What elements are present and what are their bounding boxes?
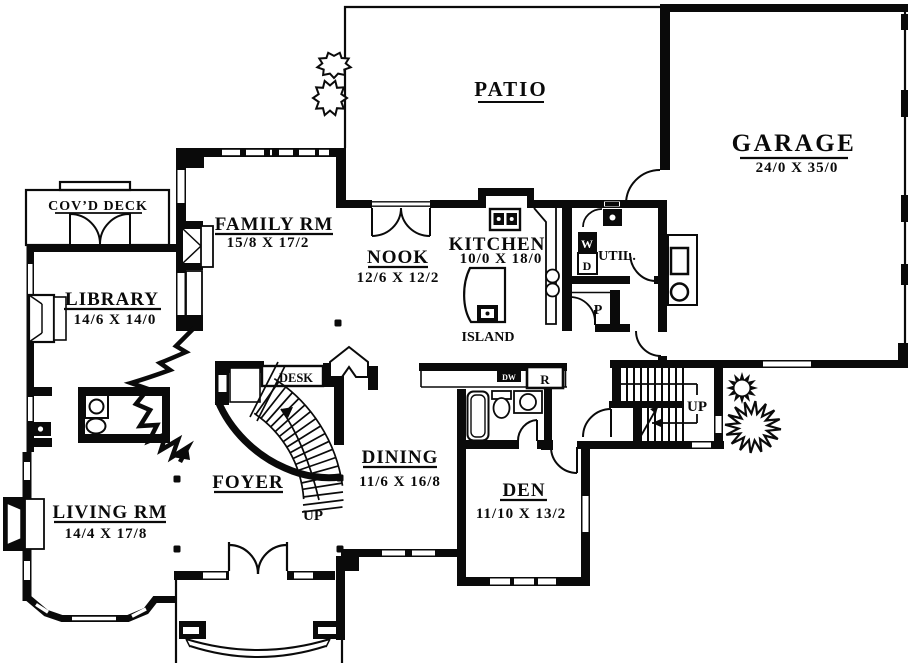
- svg-text:14/6 X 14/0: 14/6 X 14/0: [74, 312, 157, 328]
- svg-text:P: P: [594, 303, 603, 318]
- svg-text:10/0 X 18/0: 10/0 X 18/0: [460, 251, 543, 267]
- svg-text:W: W: [581, 237, 593, 251]
- svg-text:UP: UP: [303, 508, 323, 524]
- svg-text:DW: DW: [502, 373, 516, 382]
- svg-text:14/4 X 17/8: 14/4 X 17/8: [65, 526, 148, 542]
- svg-text:LIBRARY: LIBRARY: [65, 289, 159, 310]
- svg-text:24/0 X 35/0: 24/0 X 35/0: [756, 160, 839, 176]
- svg-text:UP: UP: [687, 399, 707, 415]
- svg-text:ISLAND: ISLAND: [462, 330, 515, 345]
- svg-text:NOOK: NOOK: [367, 247, 429, 268]
- svg-text:PATIO: PATIO: [474, 77, 547, 101]
- svg-text:DESK: DESK: [279, 371, 313, 385]
- svg-text:D: D: [583, 259, 592, 273]
- svg-text:11/6 X 16/8: 11/6 X 16/8: [359, 474, 441, 490]
- svg-text:12/6 X 12/2: 12/6 X 12/2: [357, 270, 440, 286]
- svg-text:DEN: DEN: [502, 480, 545, 501]
- svg-text:FOYER: FOYER: [212, 472, 284, 493]
- svg-text:11/10 X 13/2: 11/10 X 13/2: [476, 506, 566, 522]
- svg-text:R: R: [540, 372, 550, 387]
- svg-text:GARAGE: GARAGE: [732, 130, 857, 157]
- svg-text:FAMILY RM: FAMILY RM: [215, 214, 334, 235]
- svg-text:DINING: DINING: [362, 447, 439, 468]
- svg-text:LIVING RM: LIVING RM: [52, 502, 167, 523]
- svg-text:15/8 X 17/2: 15/8 X 17/2: [227, 235, 310, 251]
- svg-text:COV’D DECK: COV’D DECK: [48, 199, 148, 214]
